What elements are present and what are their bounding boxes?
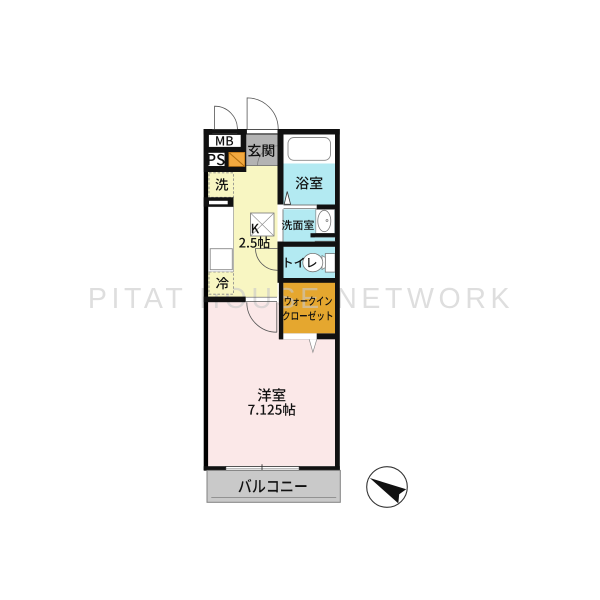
svg-text:PITAT HOUSE NETWORK: PITAT HOUSE NETWORK	[88, 283, 514, 315]
